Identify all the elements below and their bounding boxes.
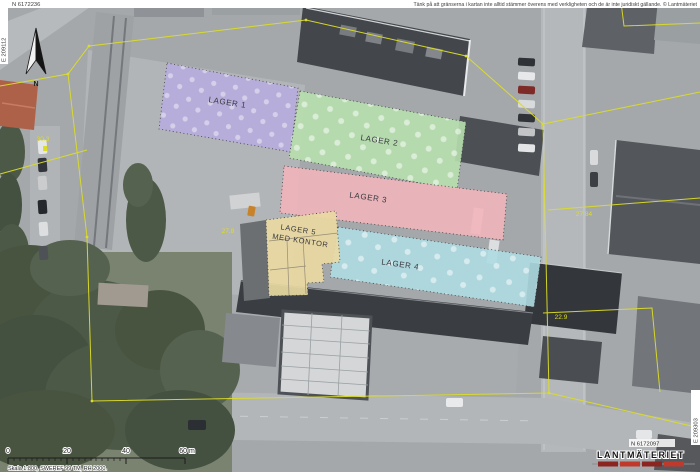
scale-tick-label: 60 m <box>179 448 195 455</box>
car <box>518 128 535 137</box>
coordinate-top-left-northing: N 6172236 <box>12 2 40 8</box>
scale-tick-label: 40 <box>122 448 130 455</box>
car <box>518 144 535 153</box>
measurement-label: 27.8 <box>222 228 235 235</box>
car <box>38 176 48 191</box>
survey-symbol <box>43 146 47 151</box>
car <box>38 158 48 173</box>
coordinate-right-easting: E 209303 <box>694 418 700 443</box>
white-panel-building <box>279 311 371 399</box>
pallet-stacks <box>97 283 148 308</box>
car <box>446 398 463 407</box>
car <box>518 58 535 67</box>
aerial-map: LAGER 1 LAGER 2 LAGER 3 LAGER 4 LAGER 5 … <box>0 0 700 472</box>
car <box>636 430 652 439</box>
car <box>518 86 535 95</box>
north-arrow-label: N <box>33 81 38 88</box>
car <box>590 150 598 165</box>
car <box>39 246 49 261</box>
coordinate-left-easting: E 209112 <box>2 38 8 62</box>
measurement-label: 30.3 <box>37 136 50 143</box>
car <box>39 222 49 237</box>
logo-text: LANTMÄTERIET <box>597 450 685 460</box>
scale-caption: Skala 1:800, SWEREF 99 TM, RH 2000. <box>8 466 107 472</box>
small-building <box>222 313 280 367</box>
building-roof <box>632 296 700 394</box>
building-roof <box>582 0 658 54</box>
car <box>38 200 48 215</box>
lantmateriet-logo: LANTMÄTERIET <box>592 450 695 467</box>
measurement-label: 27.84 <box>576 211 593 218</box>
scale-tick-label: 0 <box>6 448 10 455</box>
scale-tick-label: 20 <box>63 448 71 455</box>
tree <box>123 163 153 207</box>
car <box>590 172 598 187</box>
car <box>518 72 535 81</box>
coordinate-bottom-right-northing: N 6172097 <box>631 442 659 448</box>
right-road <box>541 0 586 452</box>
map-canvas: LAGER 1 LAGER 2 LAGER 3 LAGER 4 LAGER 5 … <box>0 0 700 472</box>
office-west-wall <box>240 220 270 301</box>
car <box>188 420 206 430</box>
disclaimer-text: Tänk på att gränserna i kartan inte allt… <box>413 1 697 8</box>
measurement-label: 22.9 <box>555 314 568 321</box>
